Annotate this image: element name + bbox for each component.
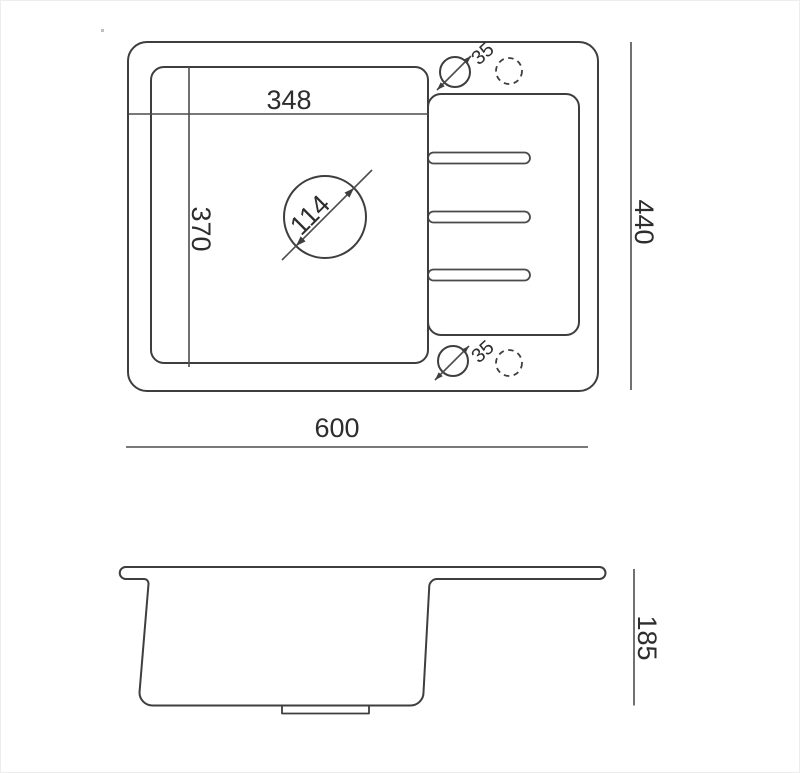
sink-top-view: 348 370 114 35 35 xyxy=(128,38,598,391)
drainboard-groove xyxy=(428,270,530,281)
drainboard-groove xyxy=(428,153,530,164)
drainboard-groove xyxy=(428,212,530,223)
drain-flange-outline xyxy=(282,706,369,714)
tap-hole-top-alt-circle xyxy=(496,58,522,84)
overall-depth-label: 440 xyxy=(629,199,659,244)
sink-drawing: 348 370 114 35 35 xyxy=(1,1,800,773)
overall-depth-dimension: 440 xyxy=(629,42,659,390)
overall-width-label: 600 xyxy=(314,413,359,443)
side-profile-outline xyxy=(120,567,606,706)
tap-hole-bottom-label: 35 xyxy=(467,336,498,367)
photo-speck xyxy=(101,29,104,32)
tap-hole-top-label: 35 xyxy=(467,38,498,69)
height-label: 185 xyxy=(632,615,662,660)
height-dimension: 185 xyxy=(632,569,662,706)
bowl-width-label: 348 xyxy=(266,85,311,115)
bowl-depth-label: 370 xyxy=(186,206,216,251)
drawing-canvas: 348 370 114 35 35 xyxy=(0,0,800,773)
overall-width-dimension: 600 xyxy=(126,413,588,447)
sink-side-view xyxy=(120,567,606,714)
tap-hole-bottom-alt-circle xyxy=(496,350,522,376)
